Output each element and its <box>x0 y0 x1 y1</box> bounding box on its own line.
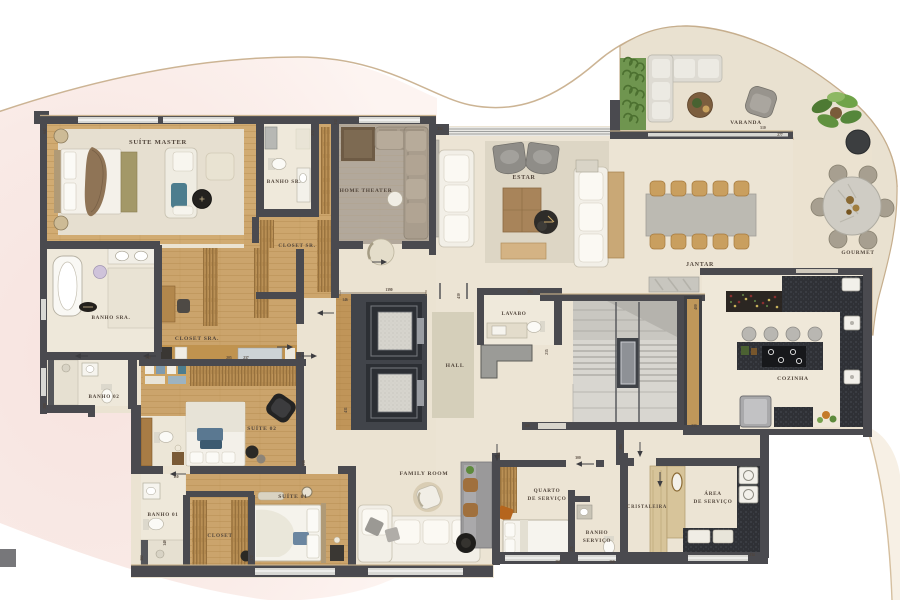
svg-text:302: 302 <box>140 555 144 561</box>
svg-text:642: 642 <box>43 128 47 134</box>
svg-text:430: 430 <box>457 293 461 299</box>
svg-text:146: 146 <box>342 298 348 302</box>
svg-text:656: 656 <box>302 460 306 466</box>
svg-text:BANHO: BANHO <box>586 530 609 536</box>
svg-text:280: 280 <box>43 403 47 409</box>
svg-text:SUÍTE 02: SUÍTE 02 <box>247 424 276 432</box>
svg-text:140: 140 <box>163 540 167 546</box>
svg-text:BANHO 01: BANHO 01 <box>147 512 178 518</box>
svg-text:CLOSET SRA.: CLOSET SRA. <box>175 336 219 342</box>
svg-text:QUARTO: QUARTO <box>534 488 561 494</box>
svg-text:339: 339 <box>145 356 151 360</box>
svg-text:312: 312 <box>334 119 338 125</box>
svg-text:ESTAR: ESTAR <box>512 175 535 181</box>
svg-text:271: 271 <box>570 546 574 552</box>
svg-text:COZINHA: COZINHA <box>777 376 809 382</box>
svg-text:BANHO SRA.: BANHO SRA. <box>92 315 131 321</box>
svg-text:BANHO 02: BANHO 02 <box>88 394 119 400</box>
svg-text:DE SERVIÇO: DE SERVIÇO <box>694 499 733 505</box>
svg-text:205: 205 <box>226 356 232 360</box>
svg-text:272: 272 <box>311 130 315 136</box>
svg-text:HOME THEATER: HOME THEATER <box>340 188 393 194</box>
svg-text:160: 160 <box>609 560 615 564</box>
svg-text:SUÍTE 01: SUÍTE 01 <box>278 492 307 500</box>
svg-text:384: 384 <box>619 444 623 450</box>
svg-text:JANTAR: JANTAR <box>686 262 714 268</box>
svg-text:BANHO SR.: BANHO SR. <box>267 179 302 185</box>
svg-text:160: 160 <box>555 560 561 564</box>
svg-text:HALL: HALL <box>446 363 465 369</box>
svg-text:234: 234 <box>749 553 755 557</box>
svg-text:SUÍTE MASTER: SUÍTE MASTER <box>129 138 187 146</box>
svg-text:143: 143 <box>298 352 302 358</box>
svg-text:294: 294 <box>527 290 533 294</box>
svg-text:CRISTALEIRA: CRISTALEIRA <box>627 505 667 510</box>
svg-text:ÁREA: ÁREA <box>704 489 722 497</box>
svg-text:215: 215 <box>545 349 549 355</box>
svg-text:400: 400 <box>694 304 698 310</box>
svg-text:VARANDA: VARANDA <box>730 120 761 126</box>
svg-text:DE SERVIÇO: DE SERVIÇO <box>528 496 567 502</box>
svg-text:1390: 1390 <box>385 288 392 292</box>
svg-text:277: 277 <box>777 133 783 137</box>
svg-text:431: 431 <box>344 407 348 413</box>
svg-text:SERVIÇO: SERVIÇO <box>583 538 611 544</box>
svg-text:110: 110 <box>173 475 178 479</box>
svg-text:LAVABO: LAVABO <box>501 311 526 317</box>
svg-text:CLOSET SR.: CLOSET SR. <box>278 243 315 249</box>
svg-text:510: 510 <box>760 126 766 130</box>
svg-text:FAMILY ROOM: FAMILY ROOM <box>400 471 449 477</box>
svg-text:166: 166 <box>524 424 530 428</box>
svg-text:CLOSET: CLOSET <box>207 533 232 539</box>
svg-text:GOURMET: GOURMET <box>841 250 874 256</box>
svg-text:332: 332 <box>437 127 443 131</box>
svg-text:172: 172 <box>250 555 254 561</box>
svg-text:233: 233 <box>691 424 697 428</box>
svg-text:300: 300 <box>575 456 581 460</box>
svg-text:237: 237 <box>243 356 249 360</box>
svg-text:836: 836 <box>497 452 501 458</box>
